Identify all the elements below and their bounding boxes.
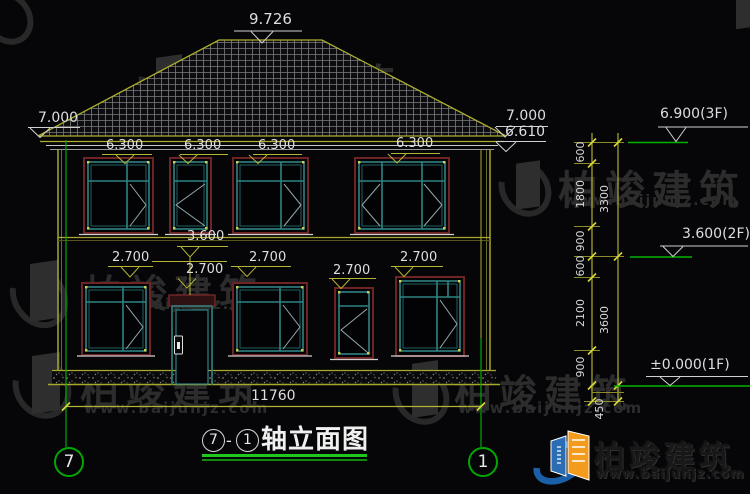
floor1-window-level-label: 2.700 xyxy=(186,263,223,276)
dim-segment-label: 600 xyxy=(575,243,587,289)
floor2-window-level-label: 6.300 xyxy=(396,137,433,150)
storey-level-symbols xyxy=(614,127,750,386)
title-axis-end-bubble: 1 xyxy=(236,429,259,452)
window xyxy=(170,158,211,233)
dim-segment-label: 2100 xyxy=(575,290,587,336)
eave-right-level-label: 7.000 xyxy=(506,109,546,123)
title-underline-secondary xyxy=(202,459,367,461)
roof xyxy=(38,40,506,150)
floor2-window-level-label: 6.300 xyxy=(258,139,295,152)
window xyxy=(233,283,307,355)
floor1-window-level-label: 2.700 xyxy=(112,251,149,264)
axis-bubble-7: 7 xyxy=(54,447,84,477)
axis-bubble-1: 1 xyxy=(468,447,498,477)
floor2-window-level-label: 6.300 xyxy=(106,139,143,152)
plinth-band xyxy=(52,371,496,384)
cad-elevation-drawing: 柏竣建筑 www.baijunjz.com 柏竣建筑 www.baijunjz.… xyxy=(0,0,750,494)
window xyxy=(396,277,464,356)
elevation-linework xyxy=(0,0,750,494)
floor1-window-level-label: 2.700 xyxy=(249,251,286,264)
title-axis-start-bubble: 7 xyxy=(202,429,225,452)
ridge-level-label: 9.726 xyxy=(249,12,292,27)
floor2-windows xyxy=(84,158,449,233)
floor1-window-level-label: 2.700 xyxy=(400,251,437,264)
window xyxy=(84,158,153,233)
brand-logo-icon xyxy=(530,431,589,489)
dim-segment-label: 900 xyxy=(575,344,587,390)
dim-storey-label: 3300 xyxy=(599,176,611,222)
entry-door xyxy=(169,295,215,385)
dim-segment-label: 1800 xyxy=(575,171,587,217)
dim-segment-label: 600 xyxy=(575,129,587,175)
eave-left-level-label: 7.000 xyxy=(38,111,78,125)
floor1-windows xyxy=(82,277,464,385)
overall-width-dimension: 11760 xyxy=(251,389,296,403)
window xyxy=(233,158,308,233)
eave-soffit-level-label: 6.610 xyxy=(505,125,545,139)
dim-base-label: 450 xyxy=(594,386,606,432)
floor2-window-level-label: 6.300 xyxy=(184,139,221,152)
dim-storey-label: 3600 xyxy=(599,297,611,343)
brand-url-text: www.baijunjz.com xyxy=(596,467,745,482)
level-1f-label: ±0.000(1F) xyxy=(650,358,730,372)
window xyxy=(82,283,150,355)
entry-level-label: 3.600 xyxy=(187,230,224,243)
level-2f-label: 3.600(2F) xyxy=(682,227,750,241)
title-text: 轴立面图 xyxy=(261,427,369,453)
title-underline xyxy=(202,454,367,457)
window xyxy=(355,158,449,233)
floor1-window-level-label: 2.700 xyxy=(333,264,370,277)
title-dash: - xyxy=(226,433,232,449)
window xyxy=(335,288,373,358)
level-3f-label: 6.900(3F) xyxy=(660,107,728,121)
